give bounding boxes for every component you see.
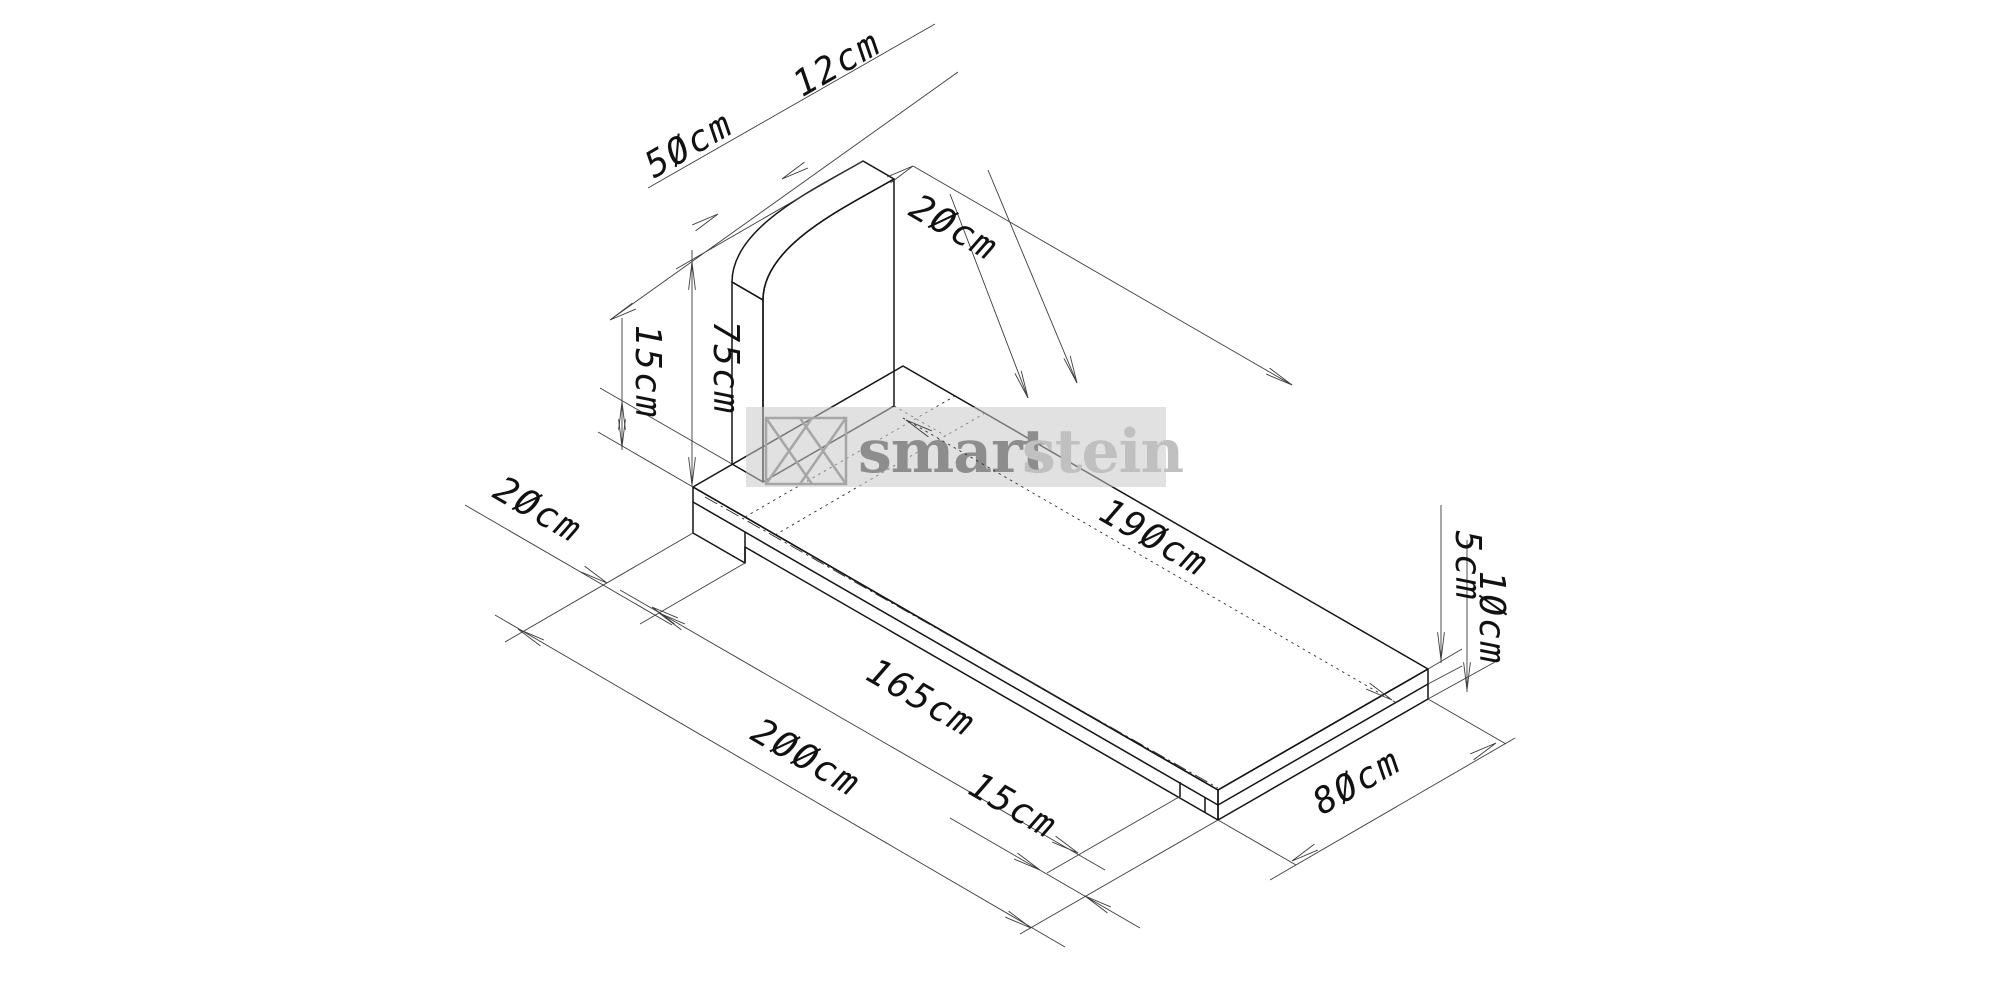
watermark-brand-suffix: stein xyxy=(1022,417,1183,487)
dim-label-slab-total-length: 2ØØcm xyxy=(744,711,867,806)
dim-label-stone-front-clearance: 2Øcm xyxy=(902,187,1005,270)
dim-label-stone-thickness: 12cm xyxy=(786,23,889,106)
dim-label-slab-inner-length: 19Øcm xyxy=(1092,491,1215,586)
drawing-canvas: smart stein 5Øcm 12cm 2Øcm 75cm 15cm 19Ø… xyxy=(0,0,1994,985)
dim-label-foot-section: 15cm xyxy=(961,765,1064,848)
monument-technical-drawing: smart stein 5Øcm 12cm 2Øcm 75cm 15cm 19Ø… xyxy=(0,0,1994,985)
dim-label-stone-side-offset: 15cm xyxy=(627,325,668,420)
dim-label-slab-total-height: 1Øcm xyxy=(1471,571,1512,666)
headstone-top-band xyxy=(732,161,894,300)
watermark-brand-prefix: smart xyxy=(858,417,1050,487)
watermark: smart stein xyxy=(746,407,1183,487)
dim-label-stone-width: 5Øcm xyxy=(638,104,741,187)
dim-label-slab-width: 8Øcm xyxy=(1306,741,1409,824)
dim-label-head-section: 2Øcm xyxy=(486,469,589,552)
dim-label-stone-height: 75cm xyxy=(705,321,746,416)
dim-label-slab-middle-length: 165cm xyxy=(859,651,982,746)
